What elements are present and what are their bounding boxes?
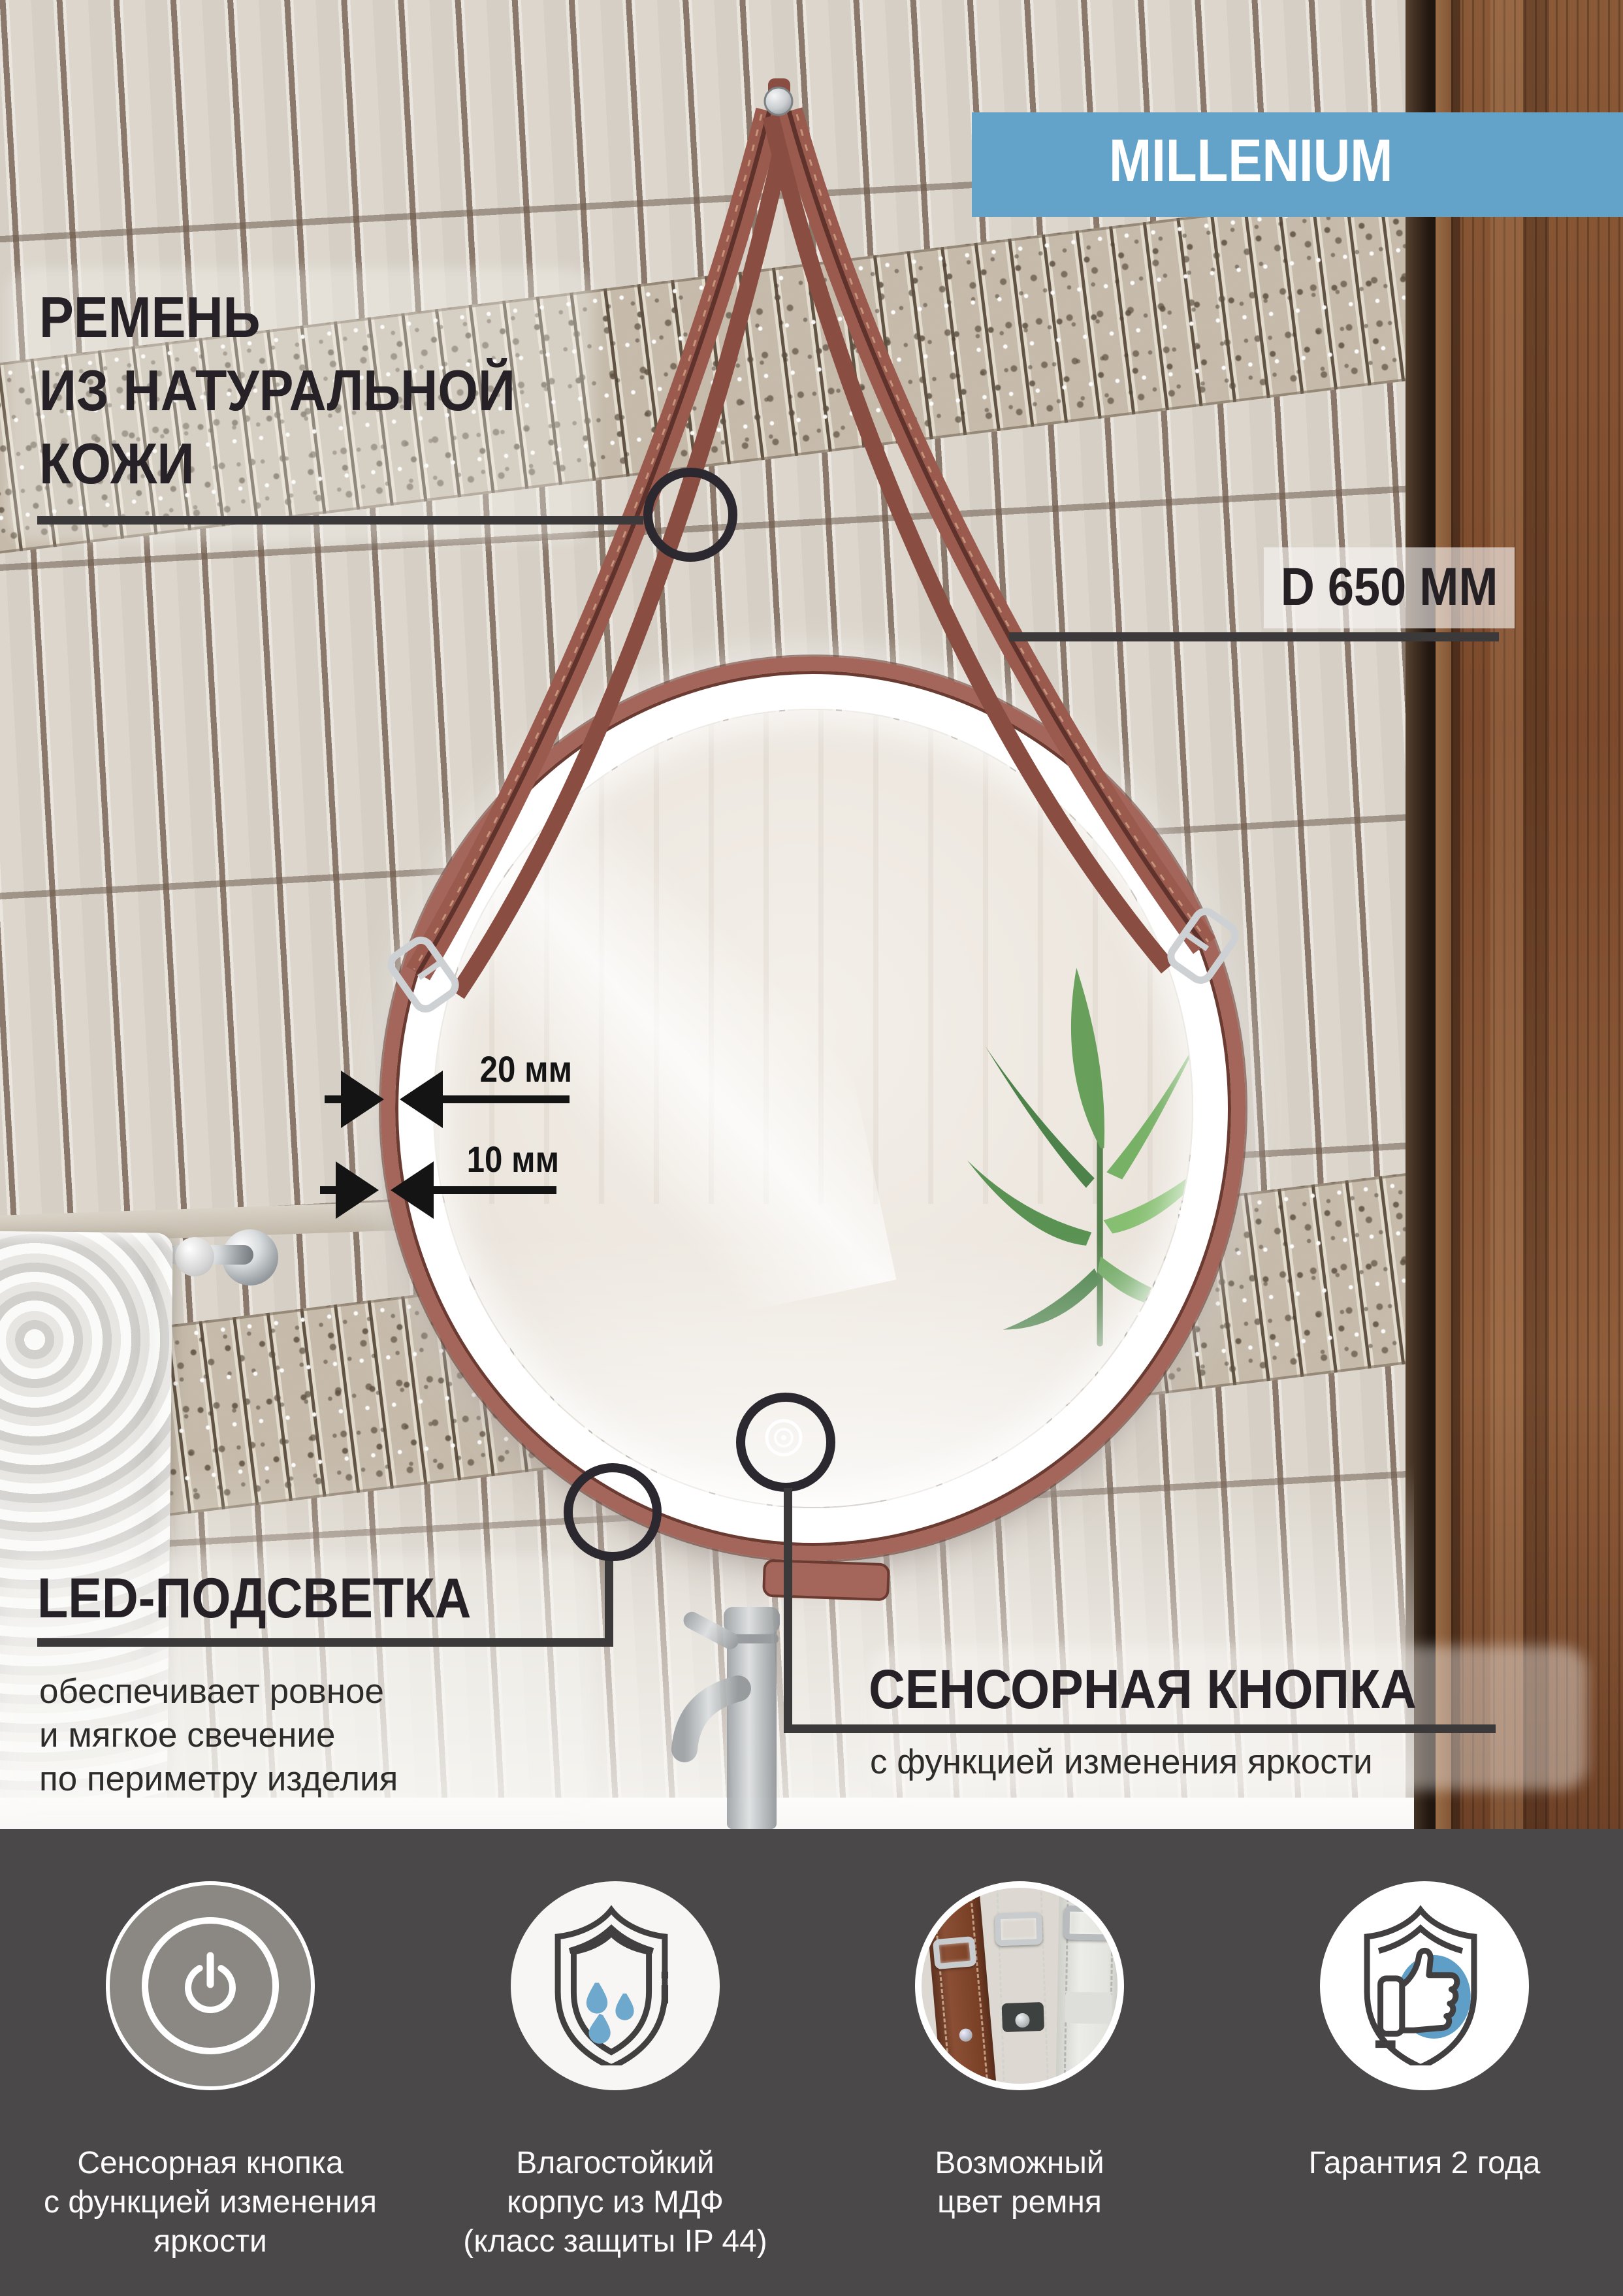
strap-white [1055, 1881, 1122, 2090]
dim-10-right-arrow [391, 1161, 434, 1219]
feature-caption-1: Сенсорная кнопкас функцией измененияярко… [14, 2144, 406, 2261]
features-band: Сенсорная кнопкас функцией измененияярко… [0, 1829, 1623, 2296]
moisture-shield-icon [511, 1881, 720, 2090]
sensor-callout-title: СЕНСОРНАЯ КНОПКА [869, 1658, 1464, 1721]
touch-power-button-icon [106, 1881, 315, 2090]
dim-10-left-arrow [336, 1161, 379, 1219]
feature-caption-2: Влагостойкийкорпус из МДФ(класс защиты I… [419, 2144, 811, 2261]
strap-callout-line [37, 516, 643, 525]
bathroom-photo [0, 0, 1623, 1829]
warranty-shield-icon [1320, 1881, 1529, 2090]
sensor-underline [784, 1724, 1496, 1733]
strap-callout-circle [643, 468, 737, 562]
led-callout-subtitle: обеспечивает ровное и мягкое свечение по… [39, 1670, 398, 1801]
dim-20-left-arrow [341, 1071, 384, 1128]
dim-20-label: 20 мм [418, 1048, 634, 1090]
strap-colors-photo [915, 1881, 1124, 2090]
brand-badge-label: MILLENIUM [1109, 127, 1443, 195]
brand-badge: MILLENIUM [972, 112, 1623, 217]
led-connector-vertical [605, 1555, 613, 1647]
dim-20-right-line [439, 1095, 570, 1103]
product-infographic: MILLENIUM РЕМЕНЬ ИЗ НАТУРАЛЬНОЙ КОЖИ D 6… [0, 0, 1623, 2296]
dim-10-right-line [430, 1186, 556, 1194]
diameter-label: D 650 ММ [1264, 557, 1515, 618]
feature-caption-3: Возможныйцвет ремня [824, 2144, 1215, 2222]
led-callout-circle [564, 1463, 662, 1561]
dim-20-right-arrow [400, 1071, 443, 1128]
sensor-callout-circle [736, 1393, 835, 1492]
dim-10-label: 10 мм [405, 1138, 620, 1180]
sensor-connector-vertical [784, 1488, 792, 1733]
strap-black [988, 1881, 1058, 2090]
led-callout-title: LED-ПОДСВЕТКА [37, 1566, 519, 1631]
diameter-callout-line [1009, 632, 1499, 641]
strap-brown [923, 1881, 998, 2090]
led-underline [37, 1638, 611, 1647]
strap-callout-title: РЕМЕНЬ ИЗ НАТУРАЛЬНОЙ КОЖИ [39, 281, 568, 500]
sensor-callout-subtitle: с функцией изменения яркости [870, 1740, 1373, 1784]
feature-caption-4: Гарантия 2 года [1229, 2144, 1620, 2183]
